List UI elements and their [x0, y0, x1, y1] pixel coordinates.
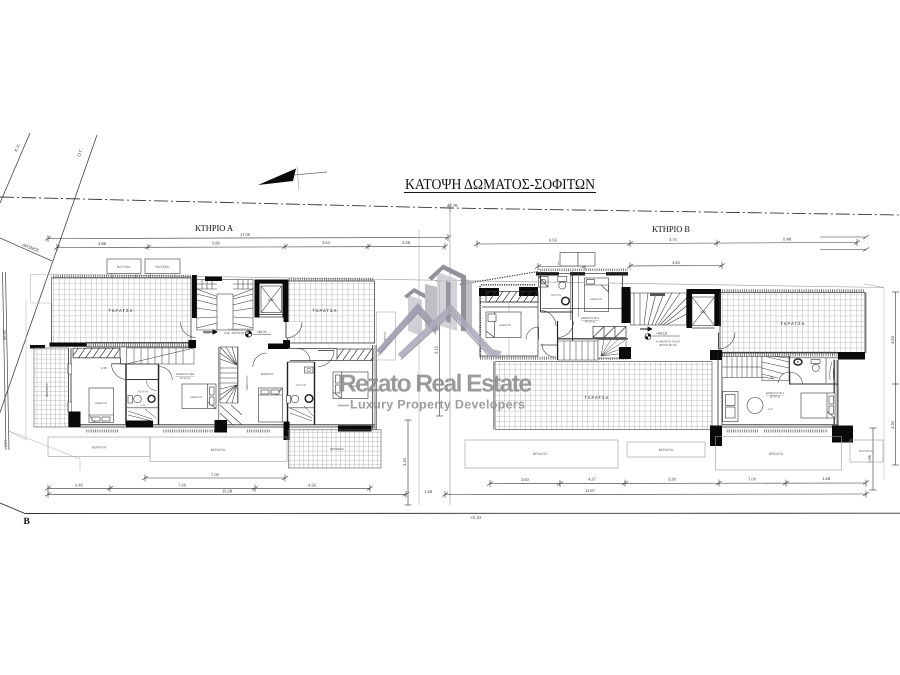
svg-text:-01,02: -01,02: [470, 515, 482, 520]
svg-text:3.70: 3.70: [669, 237, 678, 242]
svg-text:ΛΟΥΤΡΟ: ΛΟΥΤΡΟ: [138, 391, 149, 394]
svg-text:3.30: 3.30: [668, 477, 677, 482]
svg-text:ΔΩΜΑΤΙΟ: ΔΩΜΑΤΙΟ: [499, 324, 511, 327]
svg-text:Β: Β: [24, 517, 31, 527]
svg-text:ΤΑΡΑΤΣΑ: ΤΑΡΑΤΣΑ: [313, 308, 338, 313]
svg-text:ΛΟΥΤΡΟ: ΛΟΥΤΡΟ: [296, 384, 307, 387]
svg-text:1.20: 1.20: [204, 331, 210, 335]
svg-text:ΗΛ.ΣΥΛΛ.: ΗΛ.ΣΥΛΛ.: [155, 265, 169, 269]
svg-text:3.15: 3.15: [434, 345, 439, 354]
svg-text:4.30: 4.30: [890, 420, 895, 429]
svg-text:3.54: 3.54: [322, 240, 331, 245]
svg-text:ΔΩΜΑΤΙΟ: ΔΩΜΑΤΙΟ: [95, 402, 107, 405]
svg-text:ΒΕΡΑΝΤΑ: ΒΕΡΑΝΤΑ: [859, 449, 873, 453]
svg-text:11.97: 11.97: [585, 488, 595, 493]
svg-text:ΔΩΜΑΤΙΟ: ΔΩΜΑΤΙΟ: [590, 298, 602, 301]
svg-text:Rezato Real Estate: Rezato Real Estate: [339, 371, 532, 398]
svg-text:17.05: 17.05: [240, 232, 251, 237]
svg-text:ΒΕΡΑΝΤΑ: ΒΕΡΑΝΤΑ: [330, 447, 344, 451]
svg-text:+40.70: +40.70: [257, 330, 267, 334]
svg-text:ΛΟΥΤΡΟ: ΛΟΥΤΡΟ: [551, 294, 562, 297]
svg-text:1.10: 1.10: [3, 440, 7, 447]
svg-text:2.40: 2.40: [75, 482, 84, 487]
svg-text:7.00: 7.00: [748, 477, 757, 482]
svg-text:10.50 τμ: 10.50 τμ: [180, 376, 191, 380]
svg-text:42.76: 42.76: [447, 203, 458, 208]
svg-text:4.90: 4.90: [890, 335, 895, 344]
svg-text:1.95: 1.95: [867, 454, 872, 463]
svg-text:ΦΩΤΑΓΩΓΟΣ: ΦΩΤΑΓΩΓΟΣ: [231, 331, 249, 335]
svg-text:ΦΩΤΑΓΩΓΟΣ: ΦΩΤΑΓΩΓΟΣ: [659, 343, 677, 347]
svg-text:ΒΕΡΑΝΤΑ: ΒΕΡΑΝΤΑ: [211, 448, 226, 452]
svg-text:4.35: 4.35: [308, 482, 317, 487]
svg-text:6.55: 6.55: [549, 238, 558, 243]
svg-text:30,50 τμ: 30,50 τμ: [585, 320, 596, 324]
svg-text:ΒΕΡΑΝΤΑ: ΒΕΡΑΝΤΑ: [45, 383, 49, 397]
svg-text:ΒΕΡΑΝΤΑ: ΒΕΡΑΝΤΑ: [533, 452, 548, 456]
svg-text:4.27: 4.27: [588, 477, 597, 482]
svg-text:ΔΩΜΑΤΙΟ: ΔΩΜΑΤΙΟ: [261, 372, 274, 376]
svg-text:7.26: 7.26: [178, 482, 187, 487]
svg-text:ΔΩΜΑΤΙΟ: ΔΩΜΑΤΙΟ: [190, 396, 202, 399]
svg-text:0.90: 0.90: [700, 310, 706, 314]
svg-text:1.48: 1.48: [424, 489, 433, 494]
svg-text:ΒΕΡΑΝΤΑ: ΒΕΡΑΝΤΑ: [92, 446, 107, 450]
svg-text:4.10: 4.10: [767, 408, 773, 411]
svg-text:ΚΤΗΡΙΟ Α: ΚΤΗΡΙΟ Α: [195, 223, 233, 233]
svg-text:3.60: 3.60: [521, 477, 530, 482]
svg-text:ΒΕΡΑΝΤΑ: ΒΕΡΑΝΤΑ: [769, 452, 784, 456]
svg-text:1.48: 1.48: [822, 476, 831, 481]
svg-text:7.00: 7.00: [211, 472, 220, 477]
svg-text:Κ.Χ.: Κ.Χ.: [13, 143, 21, 153]
svg-text:15.28: 15.28: [222, 488, 233, 493]
svg-text:2.90: 2.90: [141, 404, 146, 407]
svg-text:1.90: 1.90: [101, 366, 107, 370]
svg-text:3.88: 3.88: [98, 241, 107, 246]
svg-text:ΚΑΤΟΨΗ ΔΩΜΑΤΟΣ-ΣΟΦΙΤΩΝ: ΚΑΤΟΨΗ ΔΩΜΑΤΟΣ-ΣΟΦΙΤΩΝ: [405, 177, 595, 193]
svg-text:Luxury Property Developers: Luxury Property Developers: [350, 398, 525, 412]
svg-text:5.85: 5.85: [212, 241, 221, 246]
svg-text:3.60: 3.60: [672, 260, 681, 265]
svg-text:ΗΛ.ΣΥΛΛ.: ΗΛ.ΣΥΛΛ.: [117, 265, 131, 269]
svg-text:Ο.Γ.: Ο.Γ.: [76, 148, 83, 157]
svg-text:ΤΑΡΑΤΣΑ: ΤΑΡΑΤΣΑ: [781, 321, 806, 326]
svg-text:ΚΑΘΙΣΤΙΚΟ: ΚΑΘΙΣΤΙΚΟ: [245, 375, 249, 391]
svg-text:16.50: 16.50: [2, 330, 7, 341]
svg-text:3.28: 3.28: [402, 240, 411, 245]
svg-text:+43.10: +43.10: [656, 332, 667, 336]
svg-text:ΚΤΗΡΙΟ Β: ΚΤΗΡΙΟ Β: [652, 224, 690, 234]
svg-text:3.40: 3.40: [402, 457, 407, 466]
svg-text:2.20: 2.20: [224, 331, 230, 335]
svg-text:28,30 τμ: 28,30 τμ: [770, 395, 781, 399]
svg-text:0.90: 0.90: [268, 298, 274, 302]
svg-text:ΒΕΡΑΝΤΑ: ΒΕΡΑΝΤΑ: [659, 448, 674, 452]
svg-text:ΤΑΡΑΤΣΑ: ΤΑΡΑΤΣΑ: [109, 308, 134, 313]
svg-text:ΤΑΡΑΤΣΑ: ΤΑΡΑΤΣΑ: [585, 395, 610, 400]
svg-text:5.98: 5.98: [783, 237, 792, 242]
